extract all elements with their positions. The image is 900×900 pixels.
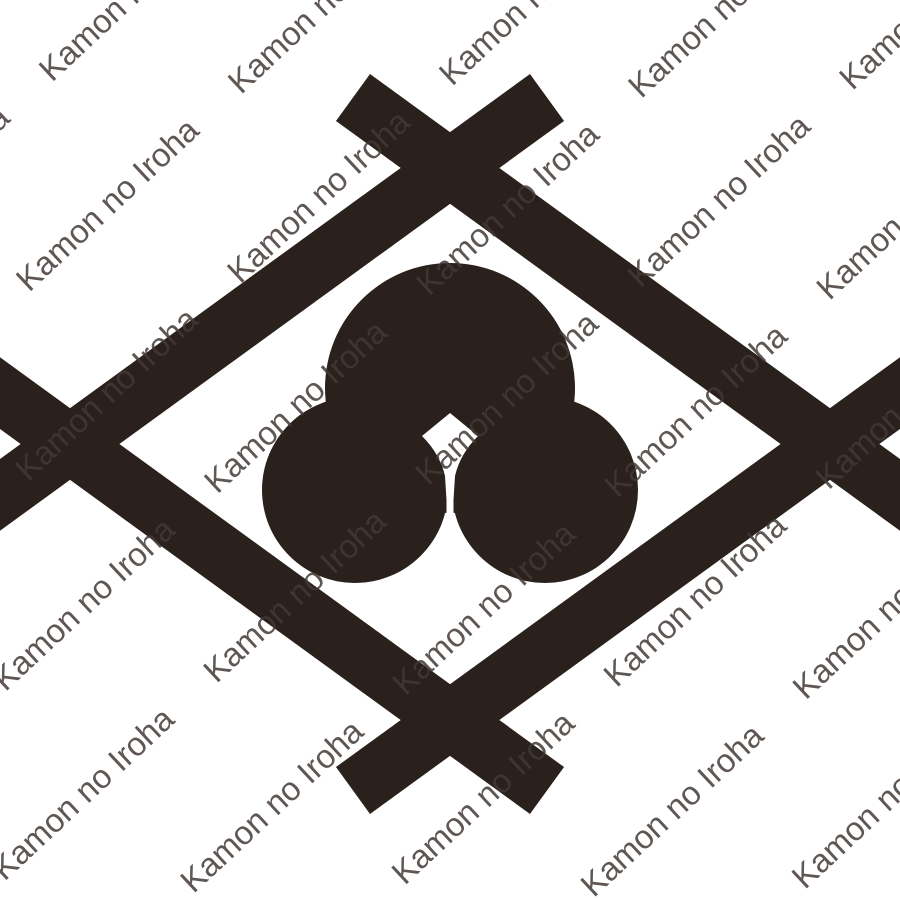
kamon-watermarked-image: Kamon no IrohaKamon no IrohaKamon no Iro… [0,0,900,900]
three-circles [262,263,638,604]
circle-bottom-left [262,397,448,583]
circle-bottom-right [452,397,638,583]
kamon-emblem [0,0,900,900]
